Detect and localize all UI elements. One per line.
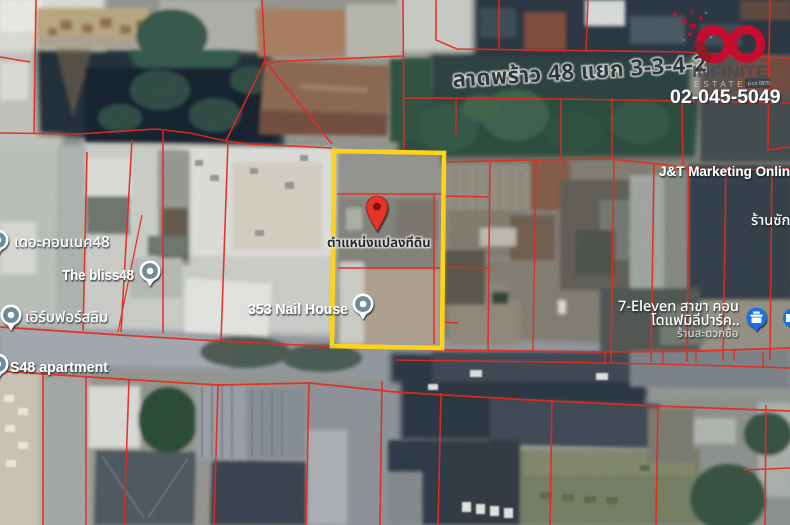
svg-text:J&T Marketing Onlin: J&T Marketing Onlin <box>659 163 790 179</box>
svg-text:S48 apartment: S48 apartment <box>10 360 108 376</box>
svg-text:02-045-5049: 02-045-5049 <box>670 86 781 108</box>
svg-text:The bliss48: The bliss48 <box>62 268 134 284</box>
svg-text:353 Nail House: 353 Nail House <box>248 301 348 318</box>
